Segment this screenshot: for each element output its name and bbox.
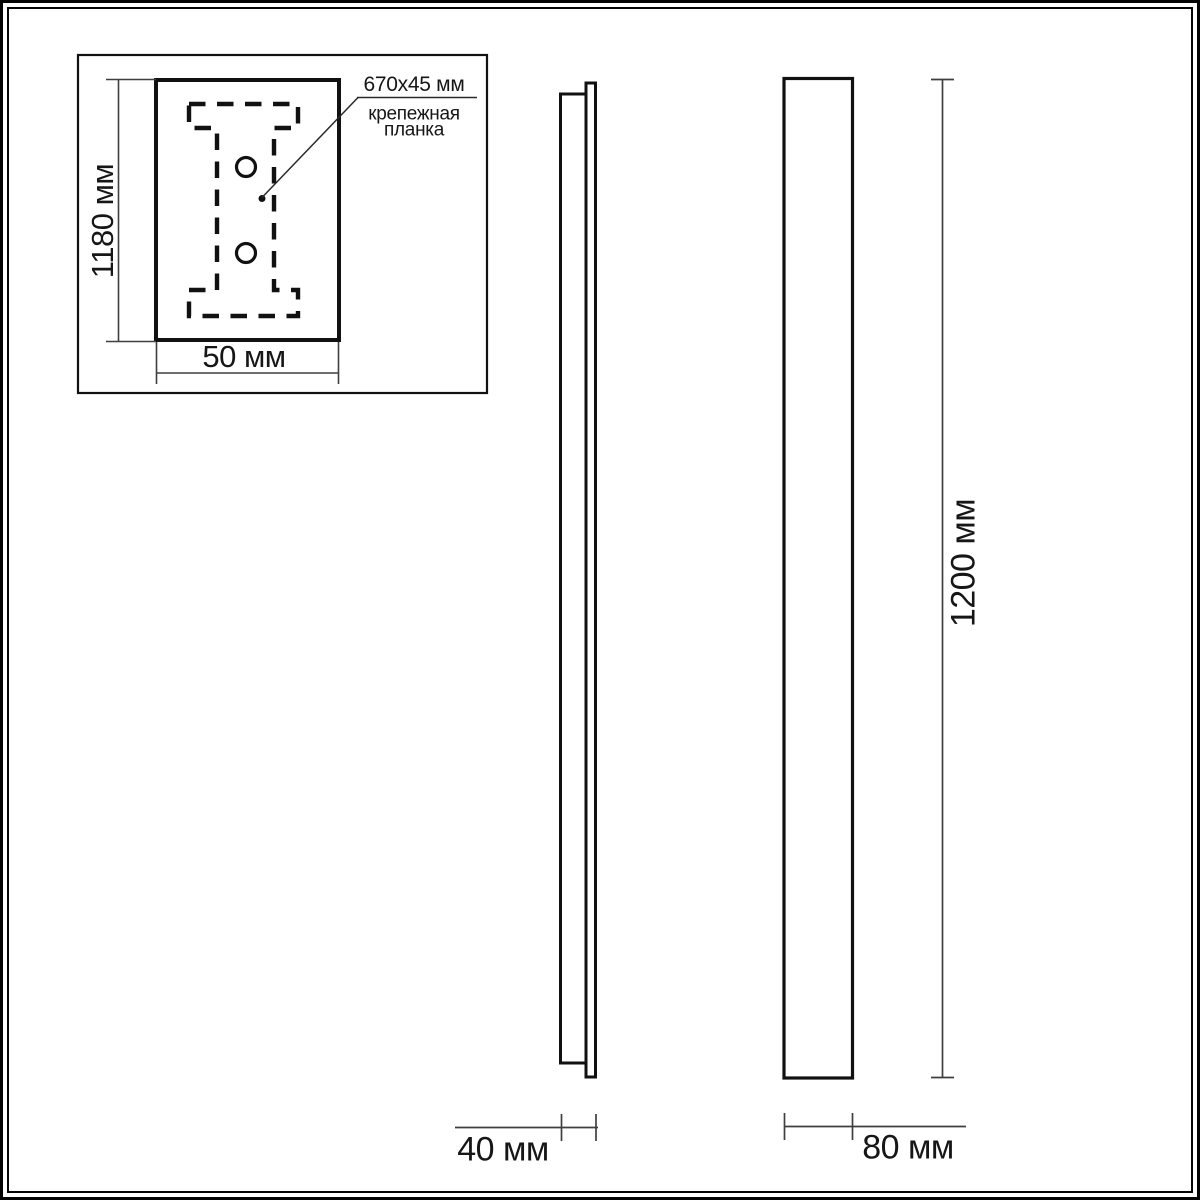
front-view [784, 79, 853, 1079]
fixture-front-outline [156, 80, 339, 340]
technical-drawing-canvas [0, 0, 1200, 1200]
callout-name-label: крепежная планка [354, 107, 474, 138]
spec-sheet-page: 1180 мм 50 мм 670x45 мм крепежная планка… [0, 0, 1200, 1200]
callout-leader-line [262, 98, 358, 198]
front-view-outline [784, 79, 853, 1079]
callout-leader-dot [259, 195, 266, 202]
front-height-label: 1200 мм [945, 499, 984, 627]
inset-width-label: 50 мм [202, 339, 285, 375]
mounting-hole-bottom [237, 244, 256, 263]
front-width-label: 80 мм [862, 1129, 954, 1168]
mounting-plate-dashed-outline [189, 104, 298, 316]
callout-size-label: 670x45 мм [364, 73, 465, 97]
side-view-body [561, 94, 587, 1063]
side-view [561, 83, 596, 1077]
side-depth-label: 40 мм [457, 1131, 549, 1170]
mounting-hole-top [237, 158, 256, 177]
inset-height-label: 1180 мм [85, 164, 121, 278]
side-view-backplate [586, 83, 596, 1077]
